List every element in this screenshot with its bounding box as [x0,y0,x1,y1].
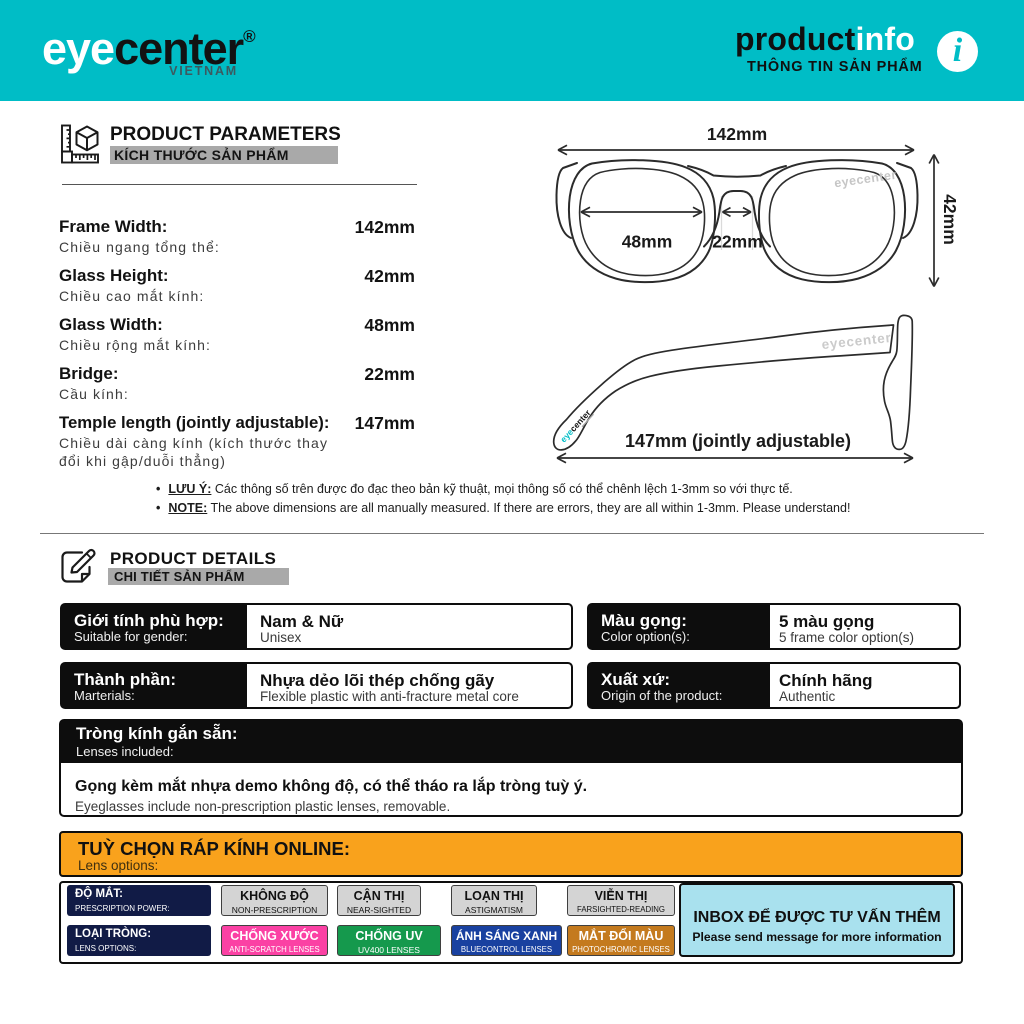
svg-text:22mm: 22mm [712,232,763,252]
svg-text:48mm: 48mm [622,232,673,252]
svg-text:142mm: 142mm [707,124,767,144]
svg-text:147mm (jointly adjustable): 147mm (jointly adjustable) [625,431,851,451]
svg-text:eyecenter: eyecenter [833,168,897,191]
svg-text:42mm: 42mm [940,194,960,245]
